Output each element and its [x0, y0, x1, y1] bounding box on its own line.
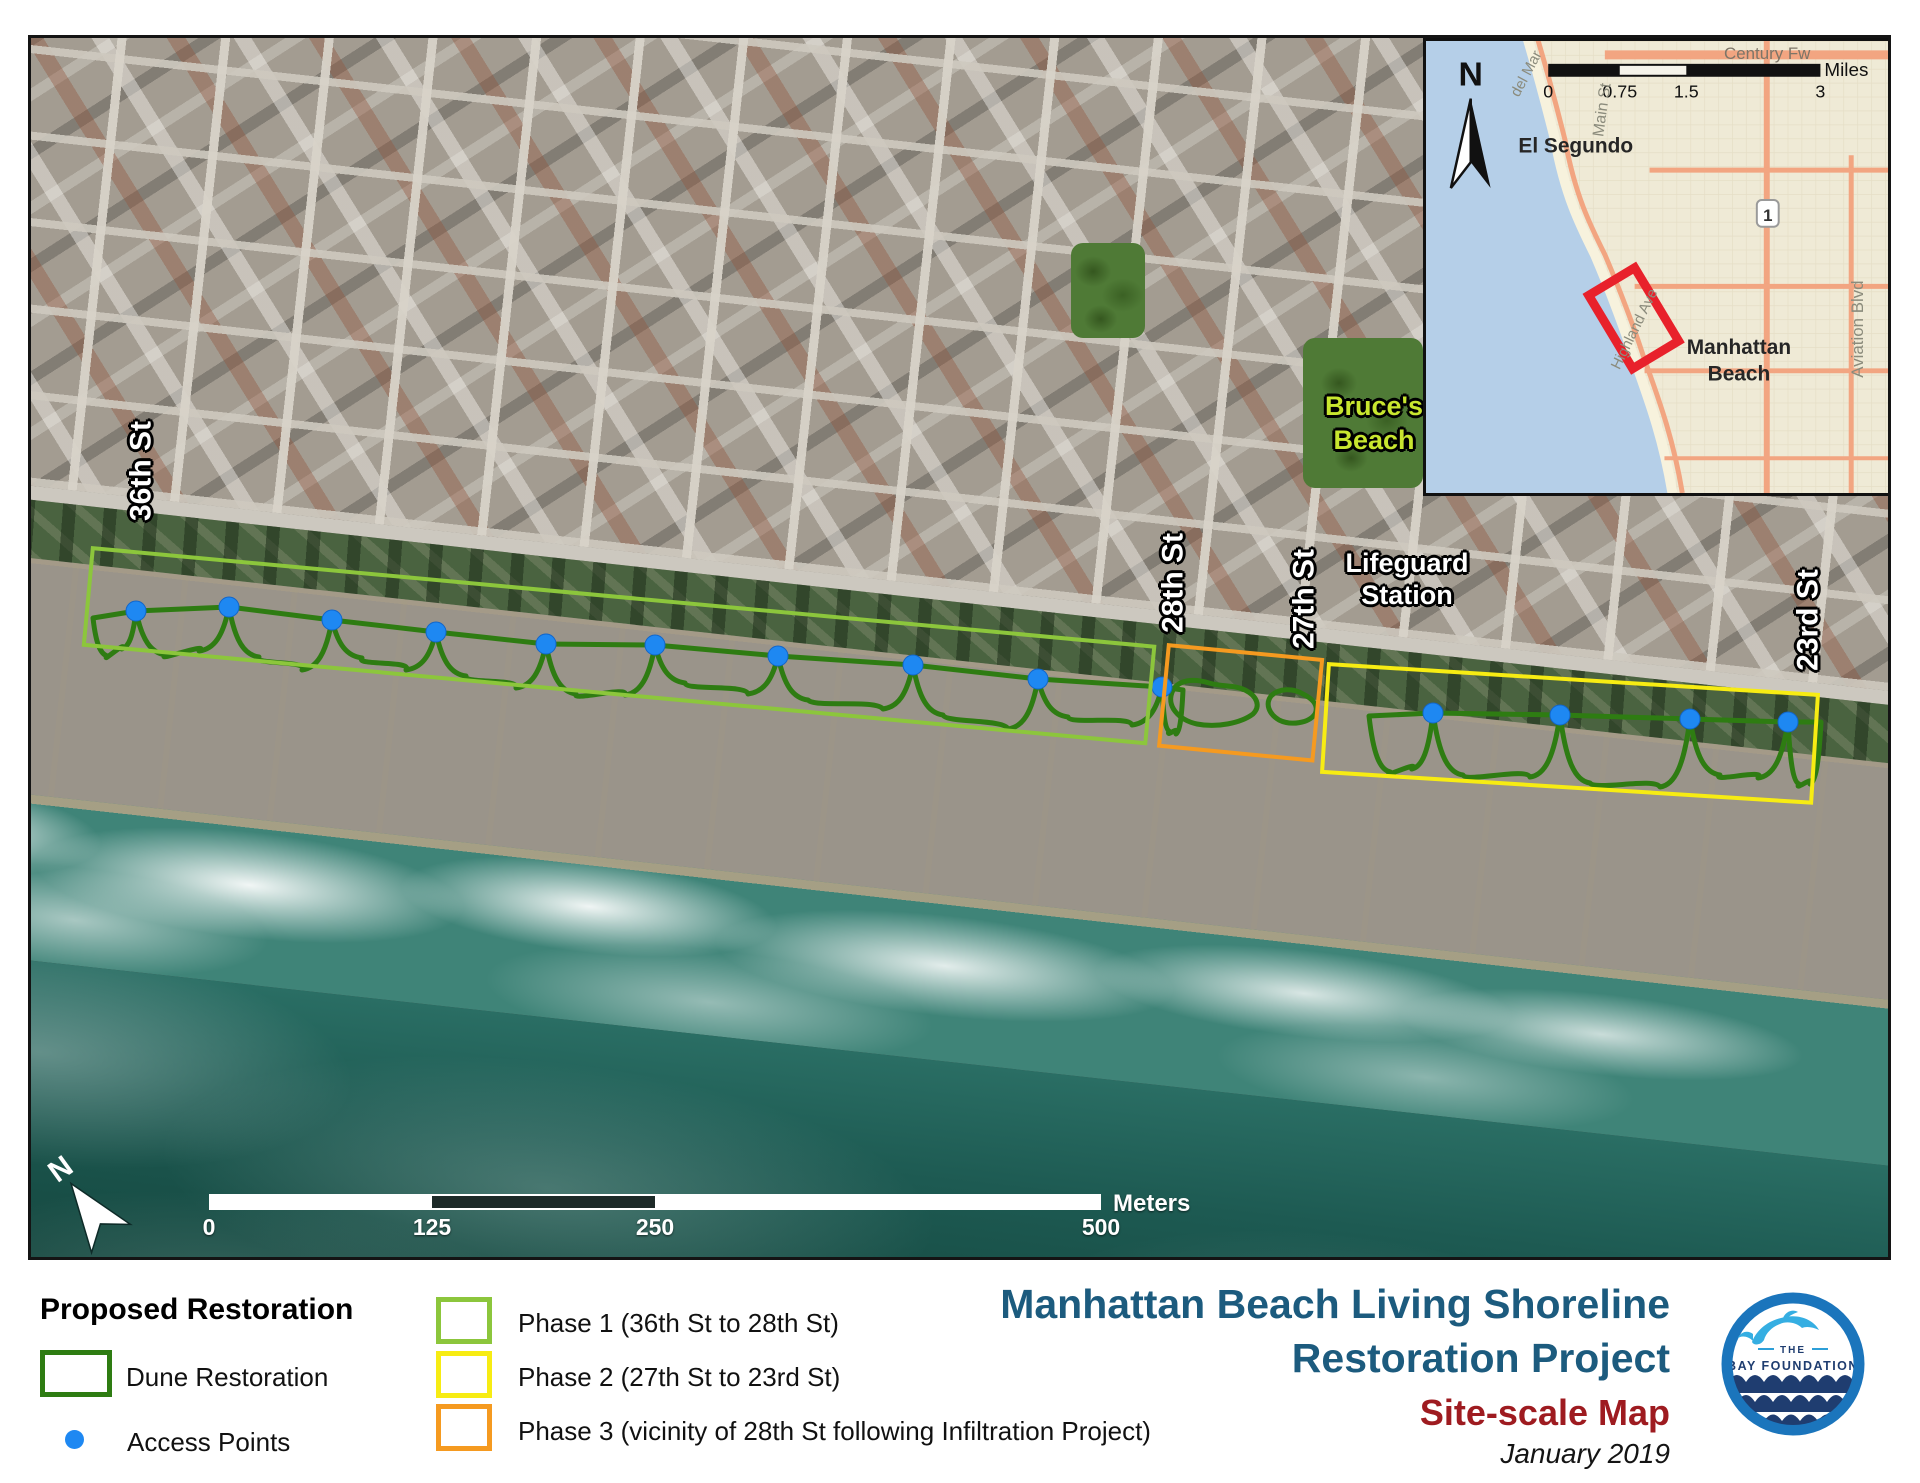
legend-phase2-swatch — [436, 1351, 492, 1398]
inset-scale-unit-label: Miles — [1824, 59, 1868, 80]
lifeguard-station-label-line1: Lifeguard — [1345, 549, 1468, 577]
map-title-line1: Manhattan Beach Living Shoreline — [860, 1281, 1670, 1328]
inset-scale-tick-0: 0 — [1543, 82, 1553, 102]
legend-dune-swatch — [40, 1350, 112, 1397]
street-label-28th: 28th St — [1157, 533, 1189, 633]
legend-phase3-swatch — [436, 1404, 492, 1451]
north-letter: N — [42, 1153, 79, 1189]
inset-locator-map: 1 0 0.75 1.5 3 Miles N El Segundo Manhat… — [1423, 38, 1891, 496]
site-map: 36th St 28th St 27th St 23rd St Lifeguar… — [28, 35, 1891, 1260]
logo-name: BAY FOUNDATION — [1727, 1359, 1859, 1373]
map-date: January 2019 — [860, 1438, 1670, 1470]
street-label-36th: 36th St — [125, 421, 157, 521]
scale-unit-label: Meters — [1113, 1190, 1190, 1218]
map-title-line2: Restoration Project — [860, 1335, 1670, 1382]
inset-map-graphic: 1 0 0.75 1.5 3 Miles N El Segundo Manhat… — [1426, 41, 1888, 493]
bruces-beach-label-line1: Bruce's — [1325, 392, 1423, 420]
inset-label-aviation-blvd: Aviation Blvd — [1848, 280, 1867, 377]
inset-label-manhattan: Manhattan — [1687, 336, 1791, 359]
bay-foundation-logo: THE BAY FOUNDATION — [1720, 1290, 1866, 1438]
phase3-rectangle — [1157, 643, 1324, 763]
scale-bar-segment — [432, 1196, 655, 1208]
legend-phase1-label: Phase 1 (36th St to 28th St) — [518, 1308, 839, 1339]
legend-phase2-label: Phase 2 (27th St to 23rd St) — [518, 1362, 840, 1393]
street-label-23rd: 23rd St — [1792, 569, 1824, 671]
legend-dune-label: Dune Restoration — [126, 1362, 328, 1393]
street-label-27th: 27th St — [1288, 549, 1320, 649]
map-subtitle: Site-scale Map — [860, 1392, 1670, 1434]
inset-scale-bar-segment — [1620, 66, 1687, 75]
scale-bar — [209, 1194, 1101, 1210]
inset-scale-tick-3: 3 — [1815, 82, 1825, 102]
bruces-beach-label-line2: Beach — [1333, 426, 1414, 454]
route1-shield-number: 1 — [1763, 206, 1772, 225]
inset-label-el-segundo: El Segundo — [1518, 134, 1633, 157]
inset-label-century-fwy: Century Fw — [1724, 44, 1811, 63]
inset-north-letter: N — [1459, 56, 1483, 94]
legend-title: Proposed Restoration — [40, 1293, 353, 1327]
scale-tick-0: 0 — [203, 1214, 216, 1241]
scale-tick-500: 500 — [1082, 1214, 1120, 1241]
inset-label-manhattan-beach: Beach — [1708, 363, 1771, 386]
legend-phase1-swatch — [436, 1297, 492, 1344]
logo-the: THE — [1780, 1345, 1806, 1356]
inset-scale-tick-15: 1.5 — [1674, 82, 1699, 102]
scale-tick-125: 125 — [413, 1214, 451, 1241]
lifeguard-station-label-line2: Station — [1361, 581, 1453, 609]
north-arrow-icon: N — [41, 1153, 151, 1260]
legend-access-label: Access Points — [127, 1427, 290, 1458]
scale-tick-250: 250 — [636, 1214, 674, 1241]
legend-access-point-icon — [65, 1430, 84, 1449]
